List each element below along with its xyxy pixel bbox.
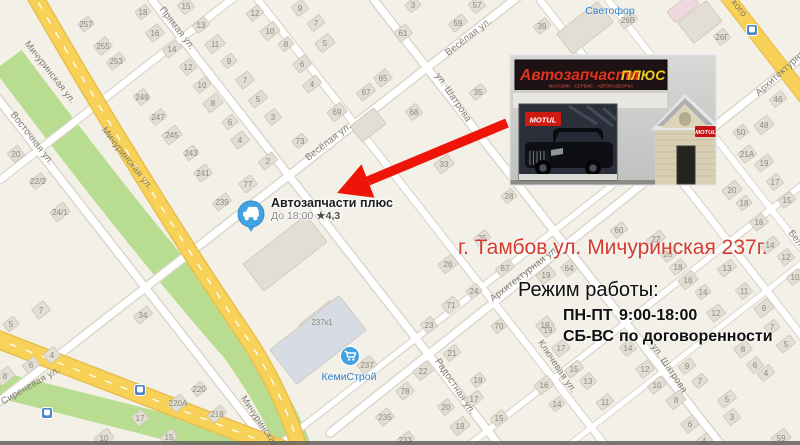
building-number-label: 5 xyxy=(323,39,328,48)
building-number-label: 19 xyxy=(474,376,483,385)
building-number-label: 8 xyxy=(211,99,216,108)
building-number-label: 10 xyxy=(198,81,207,90)
building-number-label: 11 xyxy=(211,40,220,49)
building-number-label: 26Г xyxy=(715,33,729,42)
poi-label[interactable]: Светофор xyxy=(585,5,635,17)
building-number-label: 247 xyxy=(151,113,165,122)
working-hours-weekdays: ПН-ПТ9:00-18:00 xyxy=(563,307,773,325)
building-number-label: 6 xyxy=(753,361,758,370)
building-number-label: 8 xyxy=(674,396,679,405)
building-number-label: 3 xyxy=(271,113,276,122)
building-number-label: 239 xyxy=(215,198,229,207)
building-number-label: 73 xyxy=(296,137,305,146)
building-number-label: 245 xyxy=(165,131,179,140)
building-number-label: 5 xyxy=(725,395,730,404)
building-number-label: 59 xyxy=(454,19,463,28)
building-number-label: 8 xyxy=(284,40,289,49)
map-viewport[interactable]: 2572552532492472452432412392022/224/1181… xyxy=(0,0,800,445)
motul-banner-logo: MOTUL xyxy=(530,116,557,125)
building-number-label: 220А xyxy=(169,399,188,408)
building-number-label: 18 xyxy=(456,422,465,431)
cart-wheel xyxy=(348,358,350,360)
building-number-label: 17 xyxy=(771,178,780,187)
building-number-label: 34 xyxy=(139,311,148,320)
building-number-label: 67 xyxy=(501,264,510,273)
building-number-label: 16 xyxy=(540,381,549,390)
building-number-label: 68 xyxy=(410,108,419,117)
bus-stop-icon[interactable] xyxy=(42,408,53,419)
building-number-label: 24 xyxy=(470,287,479,296)
building-number-label: 10 xyxy=(791,273,800,282)
building-number-label: 16 xyxy=(151,29,160,38)
store-hours-rating: До 18:00 ★4,3 xyxy=(271,210,393,222)
building-number-label: 3 xyxy=(411,1,416,10)
building-number-label: 20 xyxy=(728,186,737,195)
building-number-label: 249 xyxy=(135,93,149,102)
building-number-label: 64 xyxy=(565,264,574,273)
building-number-label: 22/2 xyxy=(30,177,46,186)
working-hours-weekend: СБ-ВСпо договоренности xyxy=(563,328,773,346)
motul-billboard: MOTUL xyxy=(519,104,617,180)
bottom-road-edge xyxy=(0,441,800,445)
building-number-label: 70 xyxy=(495,322,504,331)
building-number-label: 14 xyxy=(553,400,562,409)
building-number-label: 78 xyxy=(401,387,410,396)
shop-sign: Автозапчасти ПЛЮС МАГАЗИН · СЕРВИС · АВТ… xyxy=(515,60,667,90)
building-number-label: 253 xyxy=(109,57,123,66)
cart-wheel xyxy=(352,358,354,360)
building-number-label: 15 xyxy=(570,365,579,374)
building-number-label: 18 xyxy=(139,8,148,17)
building-number-label: 237к1 xyxy=(311,318,333,327)
building-number-label: 255 xyxy=(96,42,110,51)
building-number-label: 12 xyxy=(184,63,193,72)
bus-glyph-base xyxy=(45,414,49,415)
bus-stop-icon[interactable] xyxy=(747,25,758,36)
building-number-label: 12 xyxy=(251,9,260,18)
building-number-label: 257 xyxy=(79,20,93,29)
building-number-label: 48 xyxy=(760,121,769,130)
building-number-label: 13 xyxy=(197,21,206,30)
building-number-label: 35 xyxy=(474,88,483,97)
building-number-label: 39 xyxy=(538,22,547,31)
building-number-label: 9 xyxy=(227,57,232,66)
building-number-label: 12 xyxy=(782,253,791,262)
building-number-label: 21 xyxy=(448,349,457,358)
building-number-label: 67 xyxy=(362,88,371,97)
building-number-label: 6 xyxy=(29,361,34,370)
building-number-label: 7 xyxy=(698,377,703,386)
poi-circle xyxy=(341,347,360,366)
building-number-label: 77 xyxy=(244,180,253,189)
building-number-label: 65 xyxy=(379,74,388,83)
building-number-label: 6 xyxy=(300,60,305,69)
motul-wall-sign: MOTUL xyxy=(695,130,716,136)
building-number-label: 19 xyxy=(760,159,769,168)
building-number-label: 12 xyxy=(641,365,650,374)
store-map-label[interactable]: Автозапчасти плюс До 18:00 ★4,3 xyxy=(271,196,393,222)
building-number-label: 5 xyxy=(9,320,14,329)
building-number-label: 21А xyxy=(740,150,755,159)
building-number-label: 7 xyxy=(314,19,319,28)
building-number-label: 7 xyxy=(243,76,248,85)
bus-glyph-base xyxy=(138,391,142,392)
store-rating-value: 4,3 xyxy=(326,210,341,222)
building-number-label: 4 xyxy=(50,351,55,360)
building-number-label: 15 xyxy=(165,433,174,442)
shop-sign-subtext: МАГАЗИН · СЕРВИС · АВТОРАЗБОРКА xyxy=(549,84,635,89)
building-number-label: 8 xyxy=(741,345,746,354)
building-number-label: 4 xyxy=(238,136,243,145)
building-number-label: 17 xyxy=(136,414,145,423)
building-number-label: 13 xyxy=(584,377,593,386)
building-number-label: 61 xyxy=(399,29,408,38)
building-number-label: 9 xyxy=(298,4,303,13)
building-number-label: 15 xyxy=(495,414,504,423)
building-number-label: 243 xyxy=(184,149,198,158)
building-number-label: 241 xyxy=(196,169,210,178)
building-number-label: 15 xyxy=(783,196,792,205)
building-number-label: 4 xyxy=(310,80,315,89)
building-number-label: 3 xyxy=(730,413,735,422)
building-number-label: 18 xyxy=(740,199,749,208)
building-number-label: 60 xyxy=(615,226,624,235)
building-number-label: 10 xyxy=(266,27,275,36)
building-number-label: 69 xyxy=(333,108,342,117)
building-number-label: 7 xyxy=(39,306,44,315)
store-poi-icon[interactable] xyxy=(341,347,360,366)
building-number-label: 26 xyxy=(444,260,453,269)
building-number-label: 20 xyxy=(442,403,451,412)
building-number-label: 18 xyxy=(674,263,683,272)
store-open-until: До 18:00 xyxy=(271,210,313,222)
building-number-label: 13 xyxy=(723,264,732,273)
building-number-label: 235 xyxy=(378,413,392,422)
building-number-label: 15 xyxy=(182,2,191,11)
building-number-label: 6 xyxy=(228,118,233,127)
building-number-label: 11 xyxy=(601,398,610,407)
storefront-photo: Автозапчасти ПЛЮС МАГАЗИН · СЕРВИС · АВТ… xyxy=(509,54,717,186)
building-number-label: 26В xyxy=(621,16,635,25)
building-number-label: 220 xyxy=(192,385,206,394)
building-number-label: 14 xyxy=(168,45,177,54)
building-number-label: 218 xyxy=(210,410,224,419)
building-number-label: 2 xyxy=(266,157,271,166)
working-hours-block: Режим работы: ПН-ПТ9:00-18:00 СБ-ВСпо до… xyxy=(518,279,773,346)
star-icon: ★ xyxy=(316,210,325,222)
building-number-label: 50 xyxy=(737,128,746,137)
building-number-label: 4 xyxy=(764,369,769,378)
store-name[interactable]: Автозапчасти плюс xyxy=(271,196,393,210)
building-number-label: 9 xyxy=(685,362,690,371)
building-number-label: 6 xyxy=(688,420,693,429)
building-number-label: 24/1 xyxy=(52,208,68,217)
building-number-label: 46 xyxy=(774,95,783,104)
building-number-label: 23 xyxy=(425,321,434,330)
building-number-label: 57 xyxy=(473,1,482,10)
building-number-label: 71 xyxy=(447,301,456,310)
store-address-text: г. Тамбов ул. Мичуринская 237г. xyxy=(458,236,768,260)
building-number-label: 22 xyxy=(419,367,428,376)
building-number-label: 5 xyxy=(784,340,789,349)
poi-label[interactable]: КемиСтрой xyxy=(322,371,377,383)
building-number-label: 28 xyxy=(505,192,514,201)
bus-glyph-base xyxy=(750,31,754,32)
building-number-label: 16 xyxy=(755,218,764,227)
bus-stop-icon[interactable] xyxy=(135,385,146,396)
building-number-label: 20 xyxy=(12,150,21,159)
working-hours-title: Режим работы: xyxy=(518,279,773,302)
building-number-label: 10 xyxy=(653,381,662,390)
building-number-label: 8 xyxy=(3,372,8,381)
building-number-label: 237 xyxy=(360,361,374,370)
building-number-label: 33 xyxy=(440,160,449,169)
building-number-label: 5 xyxy=(256,95,261,104)
shop-sign-accent: ПЛЮС xyxy=(621,67,666,83)
